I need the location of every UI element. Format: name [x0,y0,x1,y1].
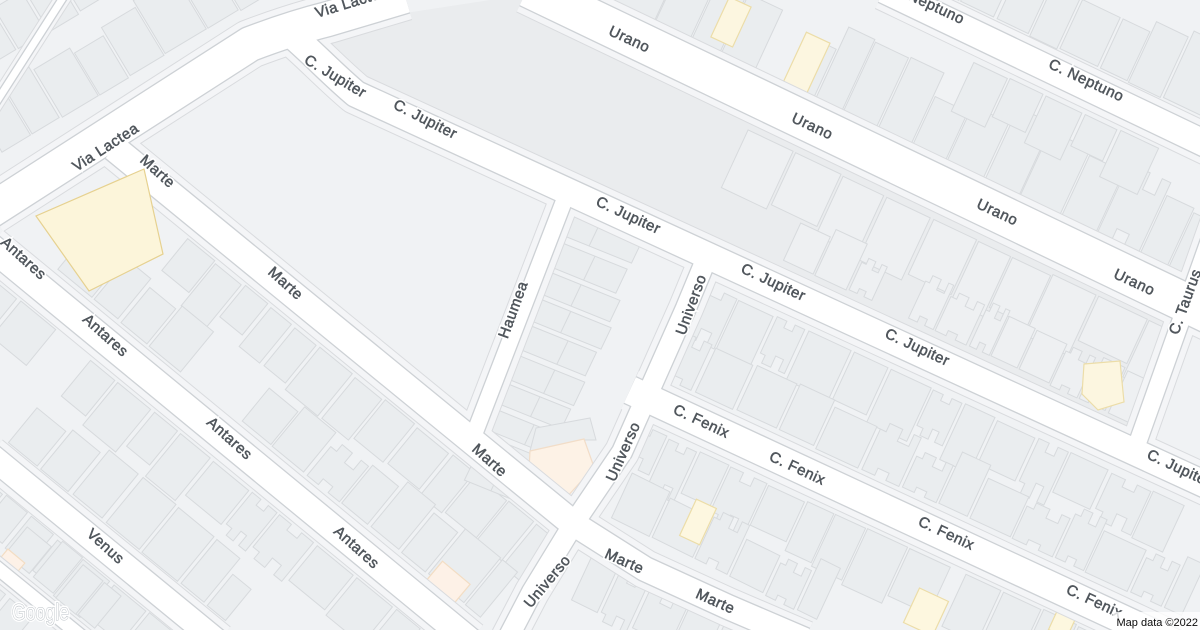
svg-text:Google: Google [12,599,69,625]
svg-text:Map data ©2022: Map data ©2022 [1117,617,1199,629]
